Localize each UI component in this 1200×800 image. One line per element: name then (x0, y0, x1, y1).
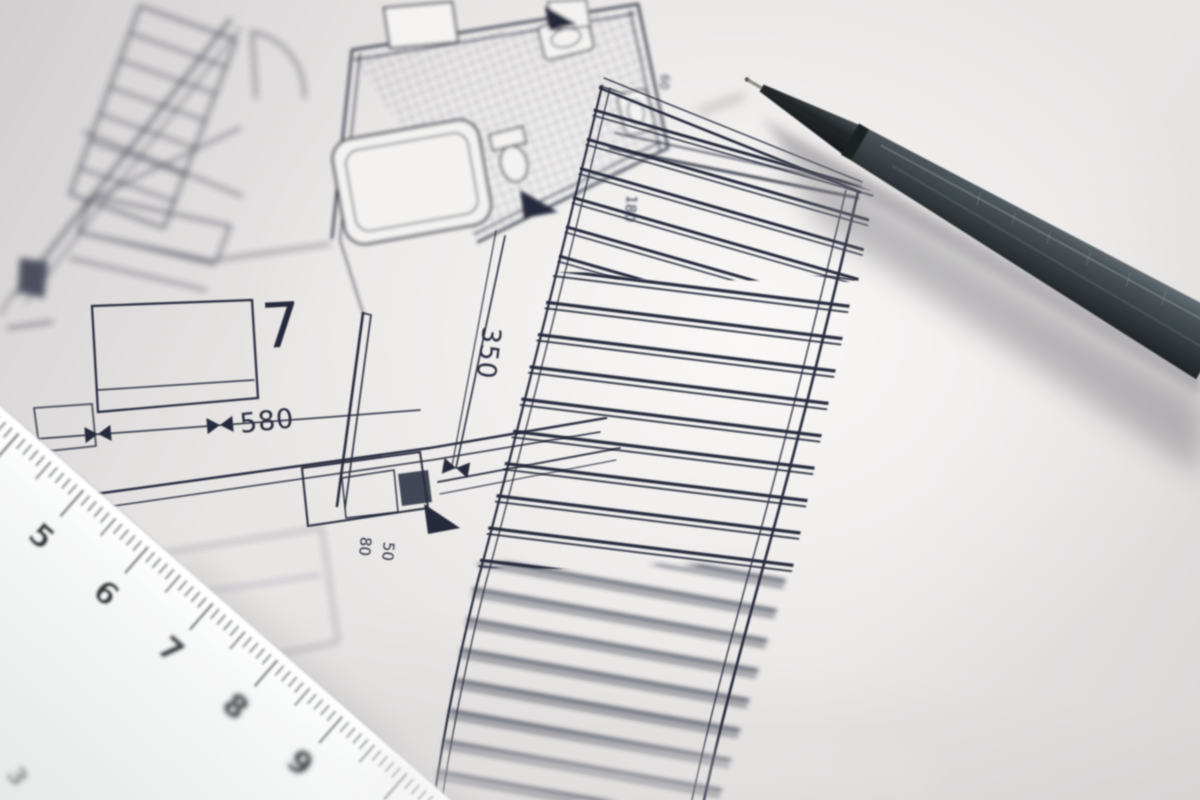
dim-arrow (206, 416, 233, 434)
defocus-wash (370, 745, 930, 800)
dim-arrow (442, 458, 470, 478)
bathtub (330, 117, 494, 247)
pen-grip (753, 73, 860, 154)
section-marker (424, 504, 460, 534)
photo-svg: 180 60 580 7 (0, 0, 1200, 800)
scale-ruler: 4 5 6 7 8 9 3 (0, 377, 495, 800)
dim-arrow (84, 425, 111, 443)
dim-label-350: 350 (470, 325, 506, 381)
dim-label-580: 580 (238, 403, 295, 440)
room-number: 7 (259, 288, 302, 363)
door-leaf (384, 2, 458, 48)
dim-label-50: 50 (378, 541, 398, 562)
photo-floorplan-scene: 180 60 580 7 (0, 0, 1200, 800)
dim-label-60: 60 (657, 74, 672, 90)
dim-label-80: 80 (355, 536, 375, 557)
